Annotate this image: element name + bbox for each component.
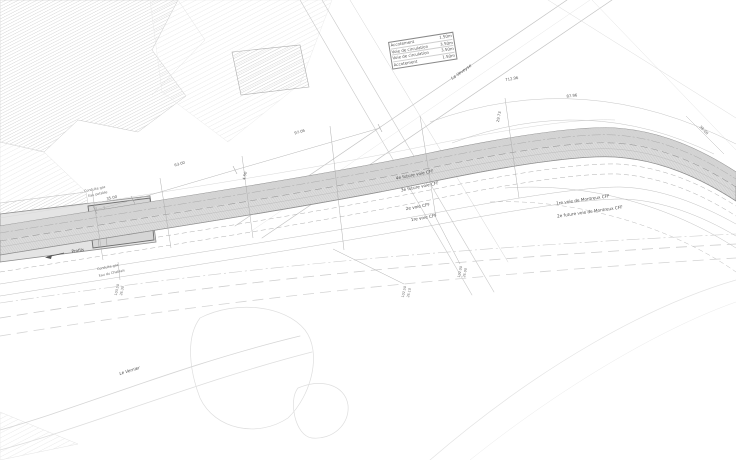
plan-drawing: Profils La Veveyse Le Vernier 4e future … [0, 0, 736, 460]
montreux-track-1-label: 1re voie de Montreux CFF [556, 193, 611, 206]
dim-63: 63.00 [174, 159, 186, 167]
leader-line [333, 249, 404, 284]
cad-site-plan: Profils La Veveyse Le Vernier 4e future … [0, 0, 736, 460]
stream-bank-line [0, 336, 300, 430]
station-offset: 26.10 [406, 288, 412, 298]
track-1-label: 1re voie CFF [410, 213, 437, 223]
dim-712: 712.96 [505, 75, 520, 82]
existing-road-dash-line [0, 258, 736, 336]
slope-toe-arc [430, 280, 736, 460]
profils-label: Profils [71, 247, 84, 254]
hatched-parcel [232, 45, 309, 95]
section-and-dimension-lines [92, 98, 736, 284]
dim-tick [233, 166, 237, 174]
leader-line [436, 218, 460, 264]
topright-line [548, 0, 736, 118]
montreux-track-1-line [505, 187, 736, 248]
dim-450: 4.50 [241, 170, 248, 180]
station-label-1: 102.50 26.10 [401, 286, 412, 298]
topright-line [592, 0, 736, 150]
dim-97: 97.06 [294, 127, 306, 135]
dim-87: 87.96 [566, 92, 578, 98]
river-label: La Veveyse [450, 63, 473, 81]
track-2-label: 2e voie CFF [405, 202, 431, 211]
dim-29: 29.73 [495, 110, 502, 122]
terrain-bottomleft-hatch [0, 412, 78, 460]
station-offset: 26.00 [462, 268, 468, 278]
stream-label: Le Vernier [119, 365, 141, 376]
existing-road-dash-line [0, 244, 736, 318]
slope-toe-arc [470, 302, 736, 460]
contour-blob-large [191, 307, 314, 429]
station-label-0: 103.50 26.30 [114, 284, 125, 296]
corridor-band-hatch [0, 128, 736, 255]
station-label-2: 102.00 26.00 [457, 266, 468, 278]
contour-blob-small [293, 383, 348, 438]
legend-row-value: 1.50m [442, 53, 456, 61]
station-offset: 26.30 [119, 286, 125, 296]
montreux-track-2-line [490, 202, 736, 272]
